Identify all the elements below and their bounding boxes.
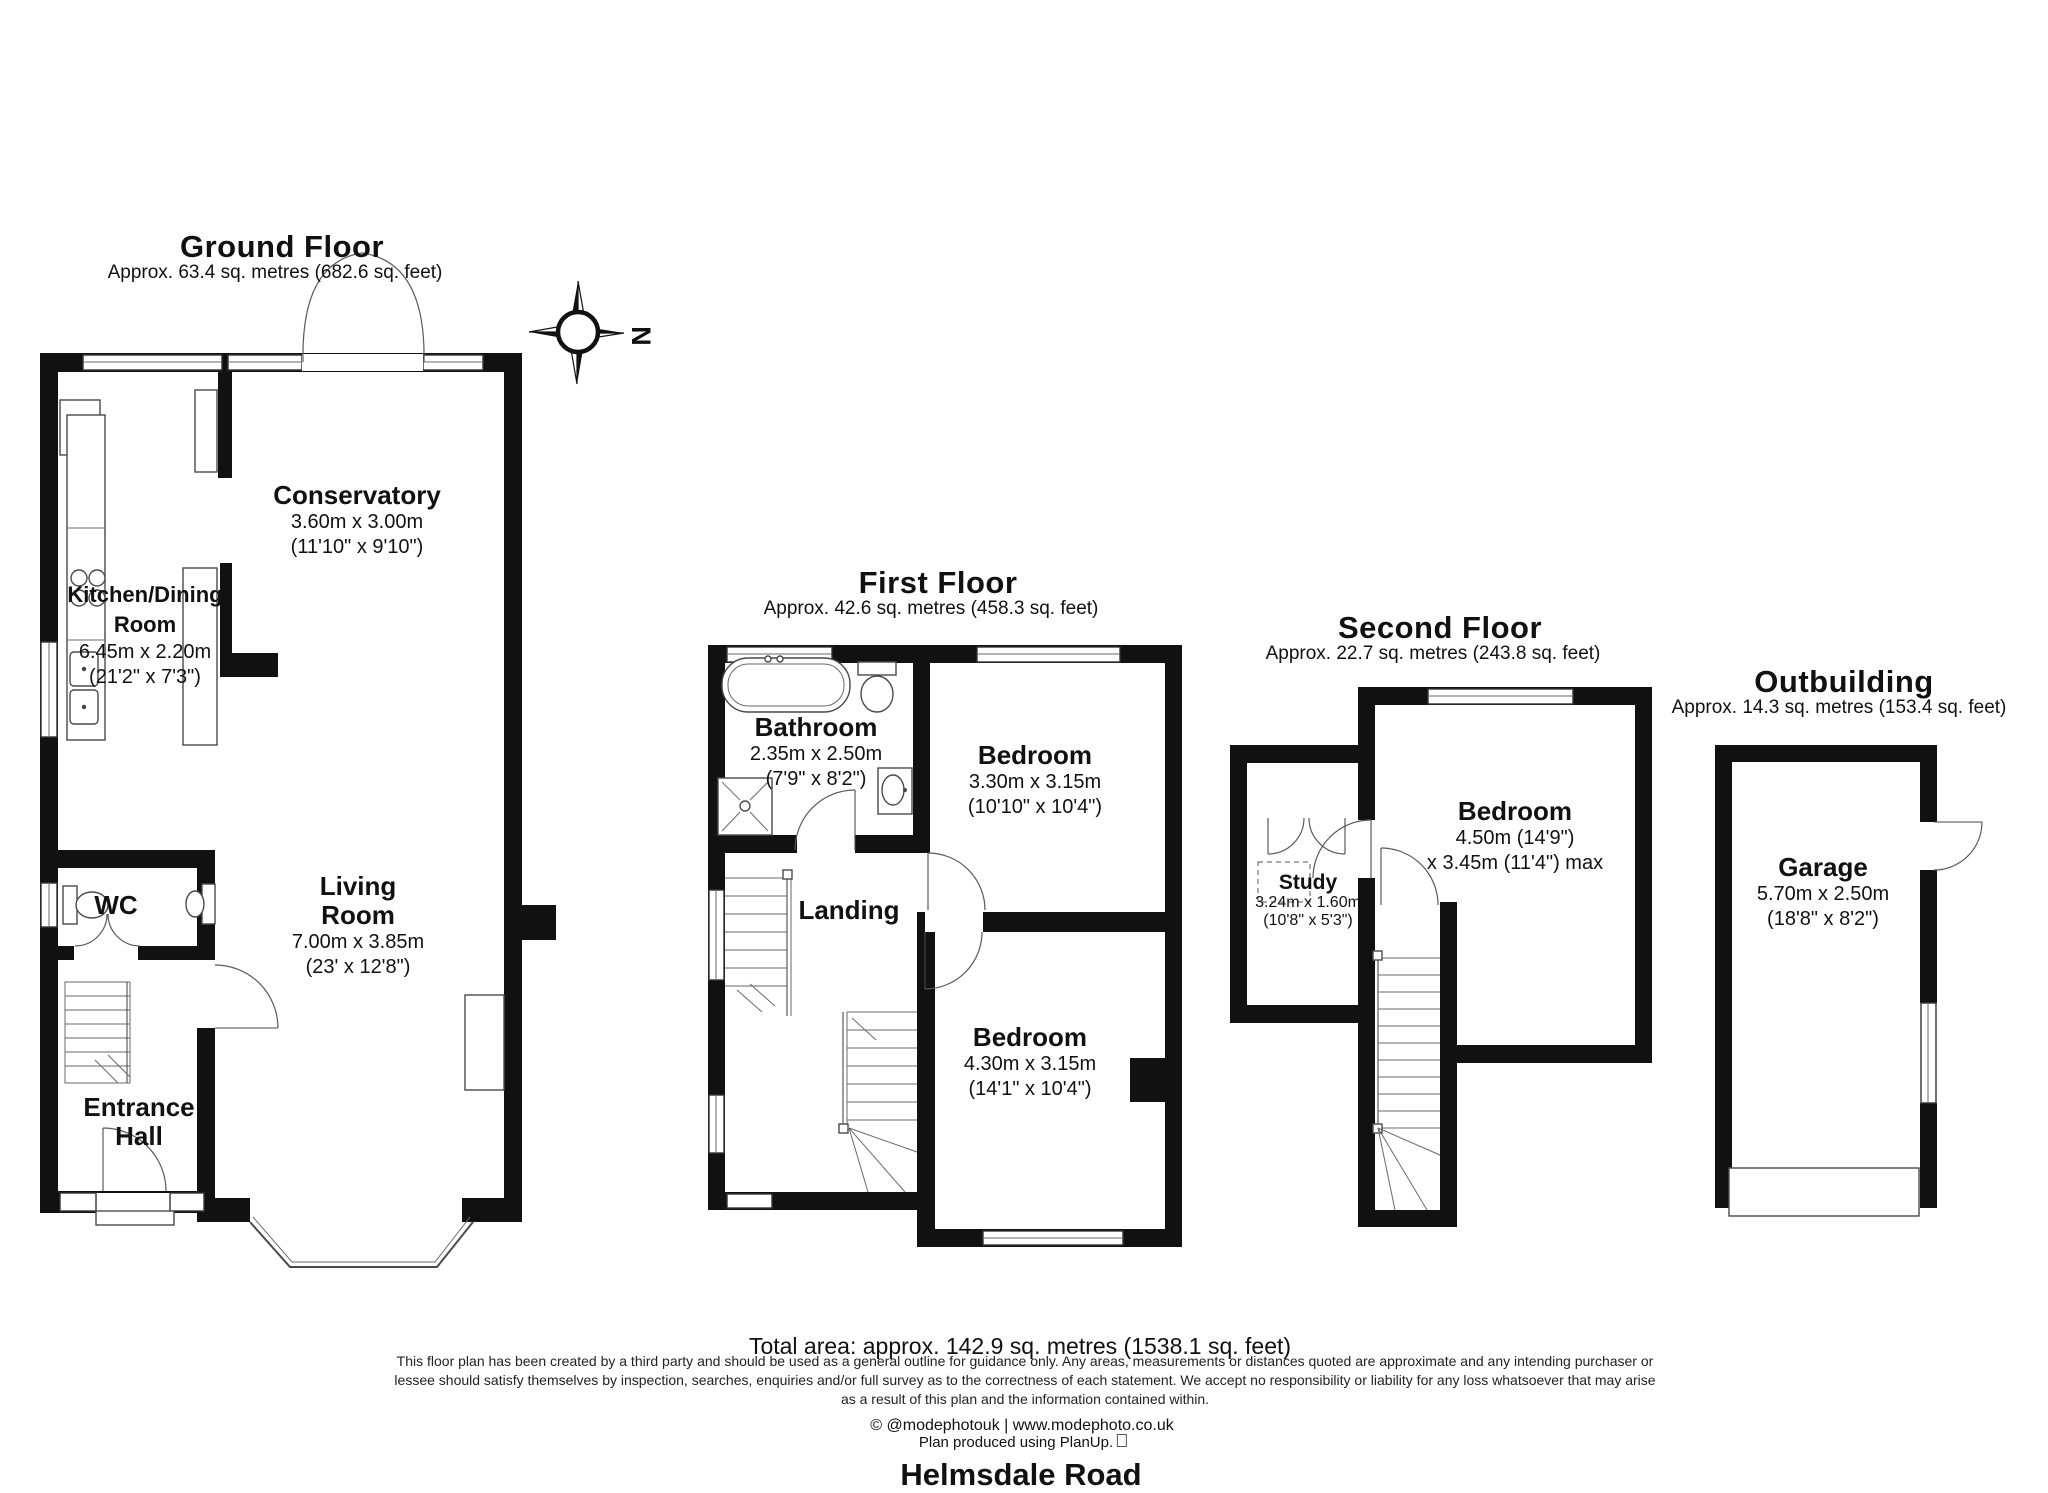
missing-glyph-box <box>1117 1434 1127 1447</box>
room-name: Hall <box>83 1122 194 1151</box>
room-dim-imperial: (18'8" x 8'2") <box>1757 907 1889 932</box>
compass-rose: N <box>525 268 665 398</box>
room-label-conservatory: Conservatory 3.60m x 3.00m (11'10" x 9'1… <box>273 481 441 560</box>
room-name: Kitchen/Dining <box>67 580 222 610</box>
room-label-bedroom-first-rear: Bedroom 4.30m x 3.15m (14'1" x 10'4") <box>964 1023 1096 1102</box>
outbuilding-title: Outbuilding <box>1754 664 1933 700</box>
room-dim-metric: 3.60m x 3.00m <box>273 510 441 535</box>
ground-floor-stairs <box>65 982 130 1083</box>
room-dim-metric: 2.35m x 2.50m <box>750 742 882 767</box>
room-dim-imperial: (7'9" x 8'2") <box>750 767 882 792</box>
chimney-breast <box>465 995 504 1090</box>
bay-window <box>250 1217 473 1267</box>
toilet-icon <box>858 662 896 712</box>
second-floor-subtitle: Approx. 22.7 sq. metres (243.8 sq. feet) <box>1266 643 1601 665</box>
room-dim-metric: 4.50m (14'9") <box>1427 826 1603 851</box>
room-dim-metric: 6.45m x 2.20m <box>67 640 222 665</box>
room-name: Living <box>292 872 424 901</box>
room-label-bathroom: Bathroom 2.35m x 2.50m (7'9" x 8'2") <box>750 713 882 792</box>
room-dim-metric: 3.30m x 3.15m <box>968 770 1102 795</box>
disclaimer-line-1: This floor plan has been created by a th… <box>397 1353 1654 1369</box>
credit-text: © @modephotouk | www.modephoto.co.uk <box>870 1417 1173 1435</box>
room-name: Conservatory <box>273 481 441 510</box>
room-label-living: Living Room 7.00m x 3.85m (23' x 12'8") <box>292 872 424 980</box>
outbuilding-windows <box>1921 1003 1936 1103</box>
room-name: Bedroom <box>964 1023 1096 1052</box>
compass-north-label: N <box>626 326 656 346</box>
basin-icon <box>878 768 912 814</box>
kitchen-units <box>60 390 217 745</box>
room-label-entrance-hall: Entrance Hall <box>83 1093 194 1151</box>
room-name: Study <box>1255 872 1361 894</box>
garage-door <box>1729 1168 1919 1216</box>
bathtub-icon <box>722 656 850 712</box>
room-dim-metric: 7.00m x 3.85m <box>292 930 424 955</box>
room-name: Bathroom <box>750 713 882 742</box>
room-label-bedroom-first-front: Bedroom 3.30m x 3.15m (10'10" x 10'4") <box>968 741 1102 820</box>
room-label-study: Study 3.24m x 1.60m (10'8" x 5'3") <box>1255 872 1361 930</box>
disclaimer-line-3: as a result of this plan and the informa… <box>841 1391 1209 1407</box>
room-dim-imperial: (23' x 12'8") <box>292 955 424 980</box>
ground-floor-title: Ground Floor <box>180 229 384 265</box>
room-dim-metric: 3.24m x 1.60m <box>1255 894 1361 912</box>
second-floor-walls <box>1230 687 1652 1227</box>
room-dim-imperial: (11'10" x 9'10") <box>273 535 441 560</box>
room-label-garage: Garage 5.70m x 2.50m (18'8" x 8'2") <box>1757 853 1889 932</box>
first-floor-subtitle: Approx. 42.6 sq. metres (458.3 sq. feet) <box>764 598 1099 620</box>
outbuilding-walls <box>1715 745 1937 1208</box>
wc-fixtures <box>63 884 215 924</box>
room-name: Bedroom <box>1427 797 1603 826</box>
disclaimer-line-2: lessee should satisfy themselves by insp… <box>394 1372 1655 1388</box>
second-floor-windows <box>1428 689 1573 704</box>
outbuilding-subtitle: Approx. 14.3 sq. metres (153.4 sq. feet) <box>1672 697 2007 719</box>
room-label-bedroom-second: Bedroom 4.50m (14'9") x 3.45m (11'4") ma… <box>1427 797 1603 876</box>
room-label-wc: WC <box>94 891 137 920</box>
first-floor-title: First Floor <box>859 565 1018 601</box>
room-dim-imperial: (21'2" x 7'3") <box>67 665 222 690</box>
outbuilding-plan <box>1705 738 2005 1223</box>
produced-label: Plan produced using PlanUp. <box>919 1434 1113 1451</box>
second-floor-title: Second Floor <box>1338 610 1542 646</box>
room-name: Bedroom <box>968 741 1102 770</box>
room-name: Entrance <box>83 1093 194 1122</box>
room-dim-metric: 4.30m x 3.15m <box>964 1052 1096 1077</box>
second-floor-stairs <box>1373 951 1440 1210</box>
room-name: Garage <box>1757 853 1889 882</box>
room-dim-metric: 5.70m x 2.50m <box>1757 882 1889 907</box>
room-dim-imperial: x 3.45m (11'4") max <box>1427 851 1603 876</box>
first-floor-doors <box>795 790 985 989</box>
address-title: Helmsdale Road <box>900 1457 1141 1493</box>
outbuilding-doors <box>1934 822 1982 870</box>
room-dim-imperial: (10'8" x 5'3") <box>1255 912 1361 930</box>
floorplan-page: { "compass": { "north_label": "N" }, "fl… <box>0 0 2048 1489</box>
room-label-landing: Landing <box>798 896 899 925</box>
room-label-kitchen: Kitchen/Dining Room 6.45m x 2.20m (21'2"… <box>67 580 222 690</box>
room-name: Room <box>292 901 424 930</box>
room-dim-imperial: (14'1" x 10'4") <box>964 1077 1096 1102</box>
room-dim-imperial: (10'10" x 10'4") <box>968 795 1102 820</box>
produced-text: Plan produced using PlanUp. <box>919 1434 1127 1451</box>
room-name: Room <box>67 610 222 640</box>
second-floor-plan <box>1222 680 1667 1235</box>
ground-floor-subtitle: Approx. 63.4 sq. metres (682.6 sq. feet) <box>108 262 443 284</box>
compass-icon <box>529 281 624 384</box>
